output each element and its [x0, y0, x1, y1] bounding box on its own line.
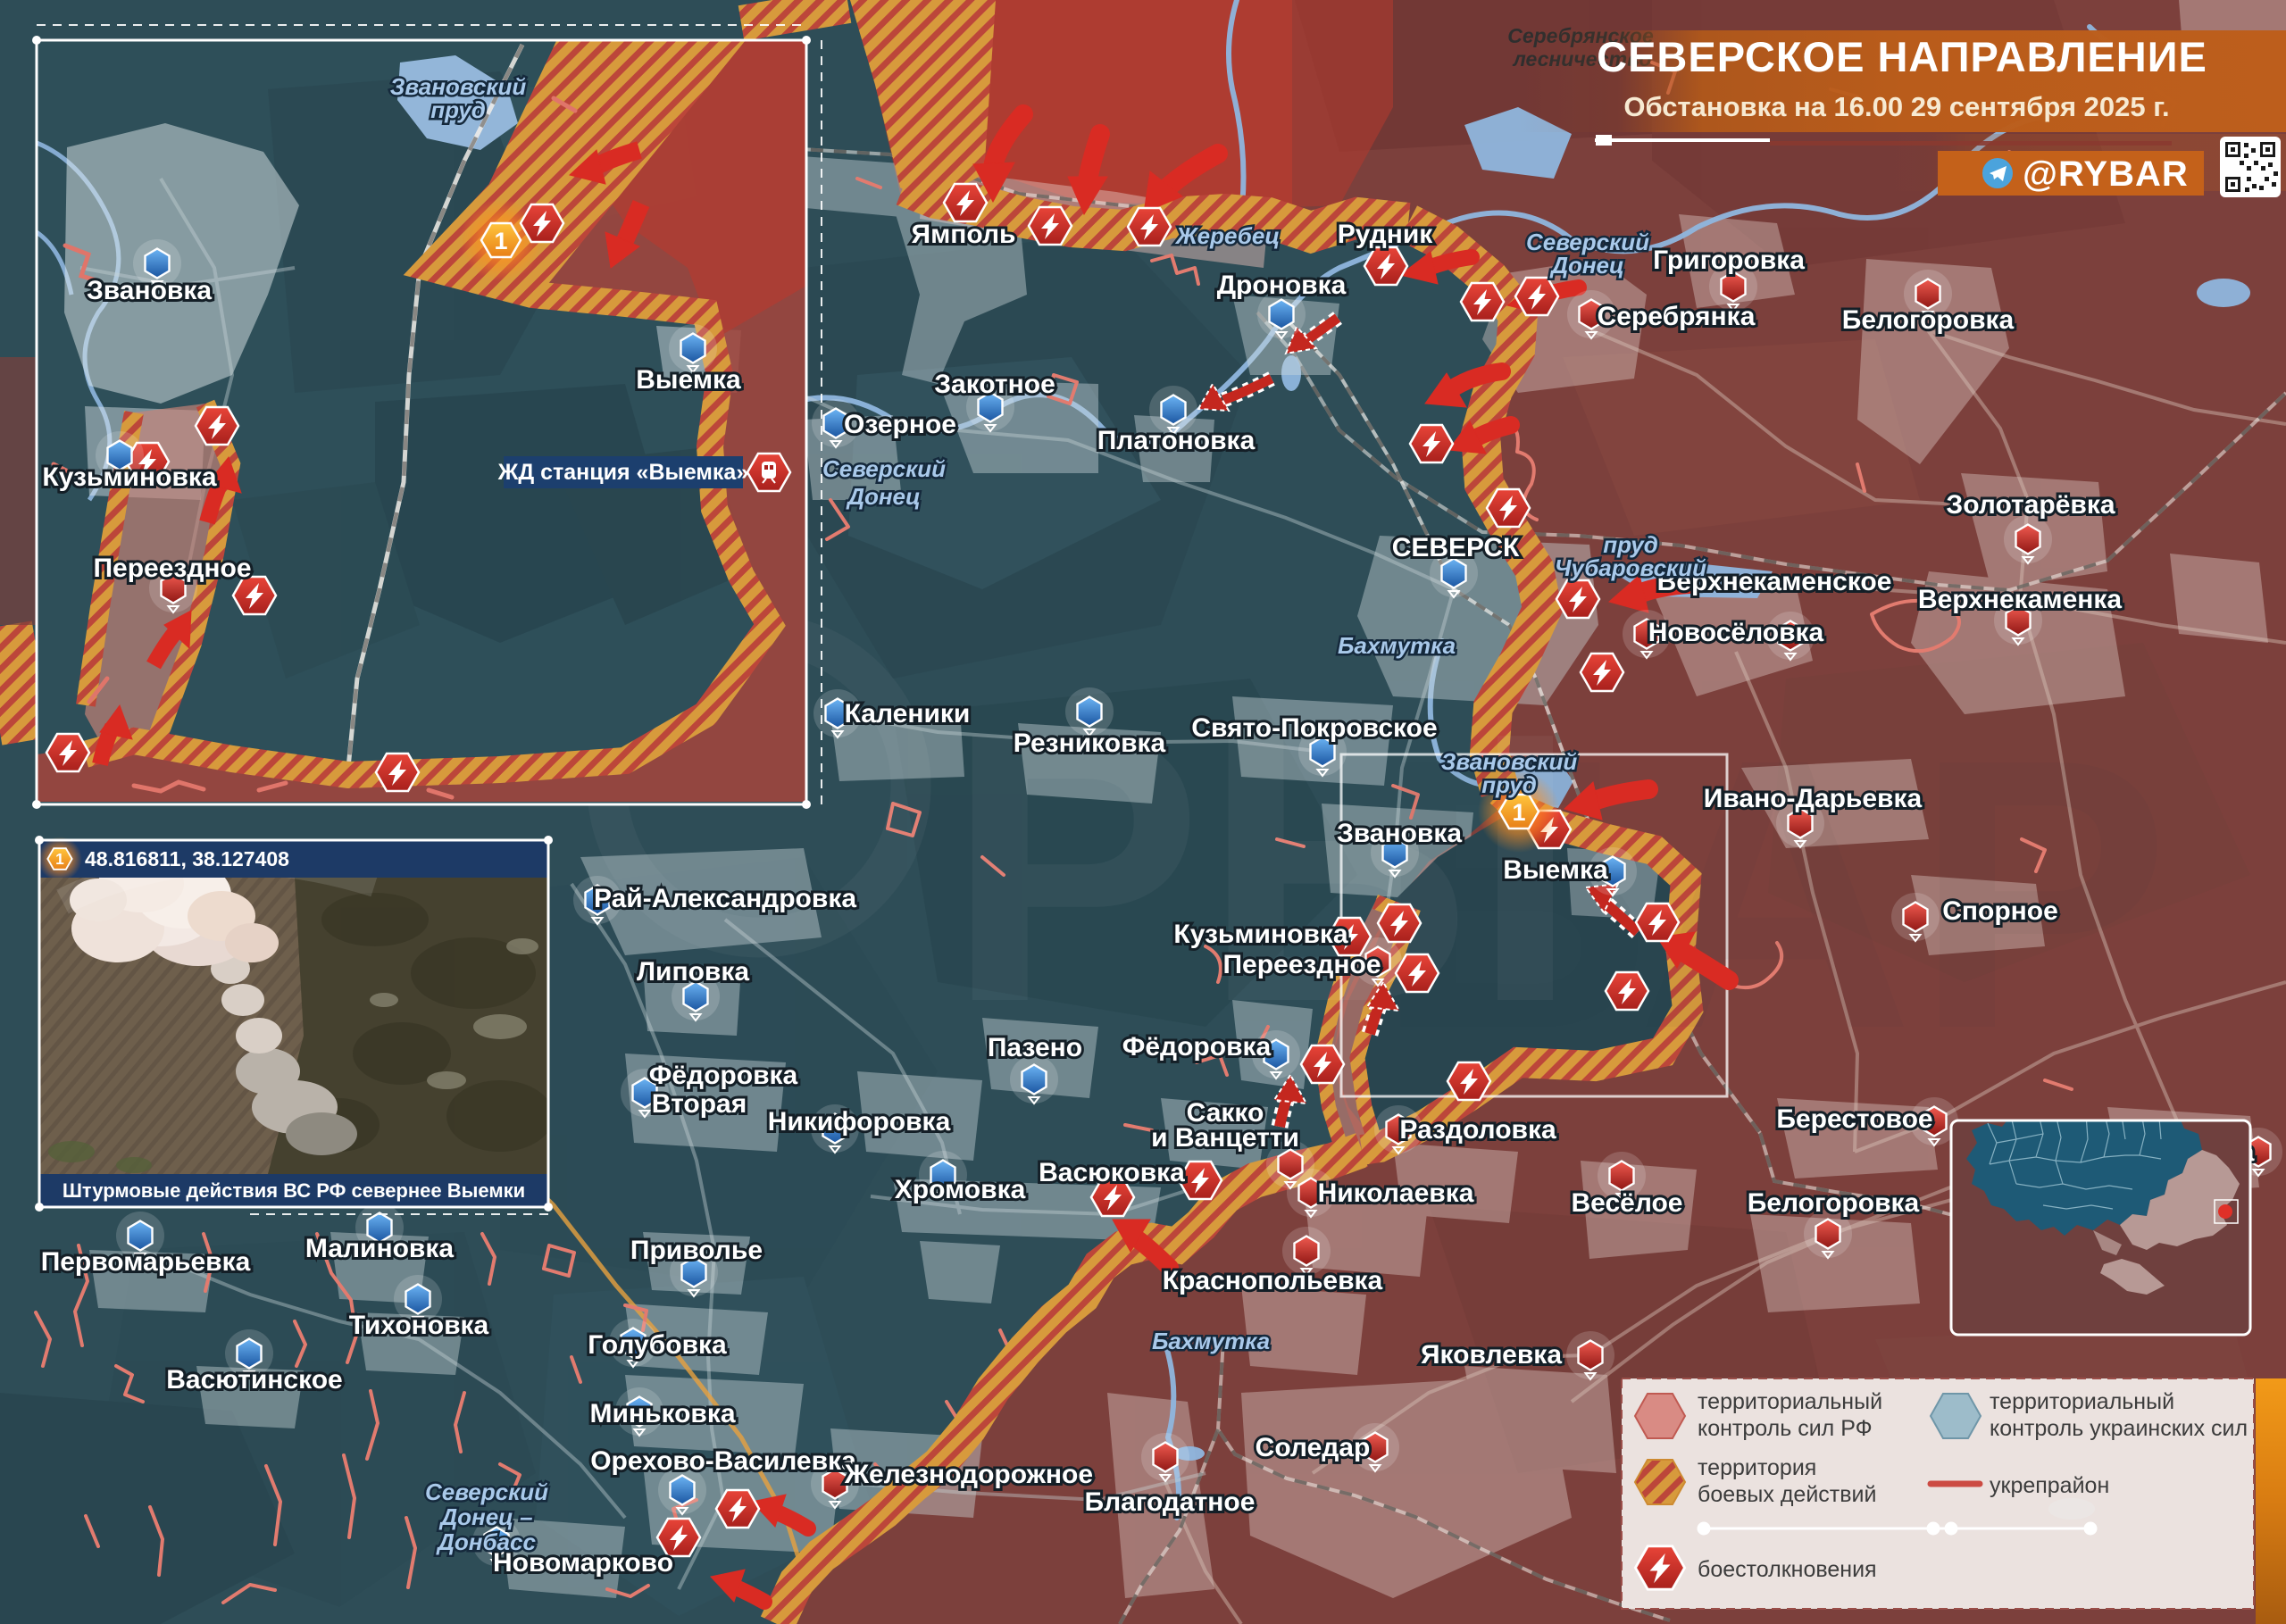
svg-text:Донбасс: Донбасс — [436, 1528, 536, 1555]
svg-text:Раздоловка: Раздоловка — [1399, 1115, 1556, 1145]
svg-text:Яковлевка: Яковлевка — [1421, 1340, 1562, 1370]
svg-text:Бахмутка: Бахмутка — [1338, 632, 1456, 659]
svg-text:территориальный: территориальный — [1990, 1389, 2174, 1414]
svg-text:Благодатное: Благодатное — [1085, 1487, 1256, 1517]
svg-text:Каленики: Каленики — [845, 699, 971, 729]
svg-text:Белогоровка: Белогоровка — [1748, 1188, 1920, 1218]
svg-text:Донец: Донец — [1549, 252, 1624, 279]
svg-text:Чубаровский: Чубаровский — [1555, 554, 1706, 581]
svg-text:@RYBAR: @RYBAR — [2023, 154, 2189, 194]
svg-text:Кузьминовка: Кузьминовка — [42, 462, 216, 492]
svg-text:Донец: Донец — [846, 483, 921, 510]
svg-text:Приволье: Приволье — [630, 1236, 763, 1265]
svg-text:контроль сил РФ: контроль сил РФ — [1698, 1416, 1873, 1441]
svg-text:Голубовка: Голубовка — [588, 1330, 727, 1360]
svg-text:Обстановка на 16.00 29 сентябр: Обстановка на 16.00 29 сентября 2025 г. — [1623, 91, 2169, 122]
svg-text:Переездное: Переездное — [1222, 950, 1381, 979]
svg-text:Первомарьевка: Первомарьевка — [41, 1247, 251, 1277]
svg-text:Фёдоровка: Фёдоровка — [1122, 1032, 1272, 1062]
svg-text:Соледар: Соледар — [1256, 1433, 1371, 1462]
svg-text:Липовка: Липовка — [637, 957, 749, 987]
svg-text:боестолкновения: боестолкновения — [1698, 1557, 1877, 1582]
svg-text:Ямполь: Ямполь — [912, 220, 1016, 249]
svg-text:Звановка: Звановка — [87, 276, 212, 305]
svg-text:Васютинское: Васютинское — [166, 1365, 342, 1395]
svg-text:Васюковка: Васюковка — [1039, 1158, 1185, 1187]
svg-text:Северский: Северский — [425, 1478, 548, 1505]
svg-text:Пазено: Пазено — [988, 1033, 1082, 1062]
svg-text:Дроновка: Дроновка — [1217, 271, 1347, 300]
svg-text:Весёлое: Весёлое — [1572, 1188, 1683, 1218]
svg-text:Фёдоровка: Фёдоровка — [649, 1061, 798, 1090]
svg-text:Хромовка: Хромовка — [895, 1175, 1026, 1204]
svg-text:Жеребец: Жеребец — [1174, 222, 1280, 249]
svg-text:Николаевка: Николаевка — [1318, 1178, 1474, 1208]
svg-text:Берестовое: Берестовое — [1776, 1104, 1932, 1134]
svg-text:Тихоновка: Тихоновка — [349, 1311, 489, 1340]
svg-text:территория: территория — [1698, 1455, 1816, 1480]
svg-text:Выемка: Выемка — [636, 365, 741, 395]
svg-text:Северский: Северский — [822, 455, 946, 482]
svg-text:Кузьминовка: Кузьминовка — [1173, 920, 1347, 949]
svg-text:пруд: пруд — [430, 96, 486, 123]
svg-text:СЕВЕРСК: СЕВЕРСК — [1392, 533, 1520, 562]
svg-text:Золотарёвка: Золотарёвка — [1946, 490, 2115, 520]
svg-text:БАР: БАР — [1375, 680, 2170, 1109]
svg-text:ЖД станция «Выемка»: ЖД станция «Выемка» — [497, 460, 748, 485]
svg-text:Свято-Покровское: Свято-Покровское — [1191, 713, 1437, 743]
svg-text:Верхнекаменка: Верхнекаменка — [1918, 585, 2122, 614]
svg-text:1: 1 — [55, 850, 64, 868]
svg-text:Спорное: Спорное — [1942, 896, 2058, 926]
svg-text:Серебрянка: Серебрянка — [1598, 302, 1756, 331]
svg-text:контроль украинских сил: контроль украинских сил — [1990, 1416, 2248, 1441]
svg-text:Бахмутка: Бахмутка — [1152, 1328, 1270, 1354]
svg-text:Никифоровка: Никифоровка — [768, 1107, 951, 1137]
svg-text:Рудник: Рудник — [1338, 220, 1434, 249]
svg-text:пруд: пруд — [1481, 771, 1537, 798]
svg-text:боевых действий: боевых действий — [1698, 1482, 1876, 1507]
svg-text:48.816811, 38.127408: 48.816811, 38.127408 — [85, 847, 289, 870]
svg-text:СЕВЕРСКОЕ НАПРАВЛЕНИЕ: СЕВЕРСКОЕ НАПРАВЛЕНИЕ — [1597, 33, 2207, 80]
svg-text:Железнодорожное: Железнодорожное — [844, 1460, 1093, 1489]
svg-text:Звановка: Звановка — [1337, 819, 1462, 848]
svg-text:Донец –: Донец – — [438, 1503, 532, 1530]
svg-text:Орехово-Василевка: Орехово-Василевка — [590, 1446, 856, 1476]
svg-text:Выемка: Выемка — [1503, 855, 1608, 885]
svg-text:Резниковка: Резниковка — [1014, 729, 1166, 758]
svg-text:и Ванцетти: и Ванцетти — [1151, 1123, 1299, 1153]
svg-text:Миньковка: Миньковка — [589, 1399, 735, 1428]
svg-text:Переездное: Переездное — [93, 554, 251, 583]
svg-text:Платоновка: Платоновка — [1097, 426, 1256, 455]
svg-text:Краснопольевка: Краснопольевка — [1163, 1266, 1383, 1295]
svg-text:Вторая: Вторая — [652, 1089, 747, 1119]
svg-text:Озерное: Озерное — [844, 410, 956, 439]
svg-text:Малиновка: Малиновка — [305, 1234, 454, 1263]
svg-text:Штурмовые действия ВС РФ север: Штурмовые действия ВС РФ севернее Выемки — [63, 1179, 525, 1202]
svg-text:территориальный: территориальный — [1698, 1389, 1882, 1414]
svg-text:Григоровка: Григоровка — [1653, 246, 1805, 275]
svg-text:Белогоровка: Белогоровка — [1842, 305, 2015, 335]
svg-text:Рай-Александровка: Рай-Александровка — [594, 884, 856, 913]
svg-text:Ивано-Дарьевка: Ивано-Дарьевка — [1704, 784, 1923, 813]
svg-text:Новосёловка: Новосёловка — [1648, 618, 1824, 647]
svg-text:укрепрайон: укрепрайон — [1990, 1473, 2109, 1498]
svg-text:Закотное: Закотное — [934, 370, 1055, 399]
